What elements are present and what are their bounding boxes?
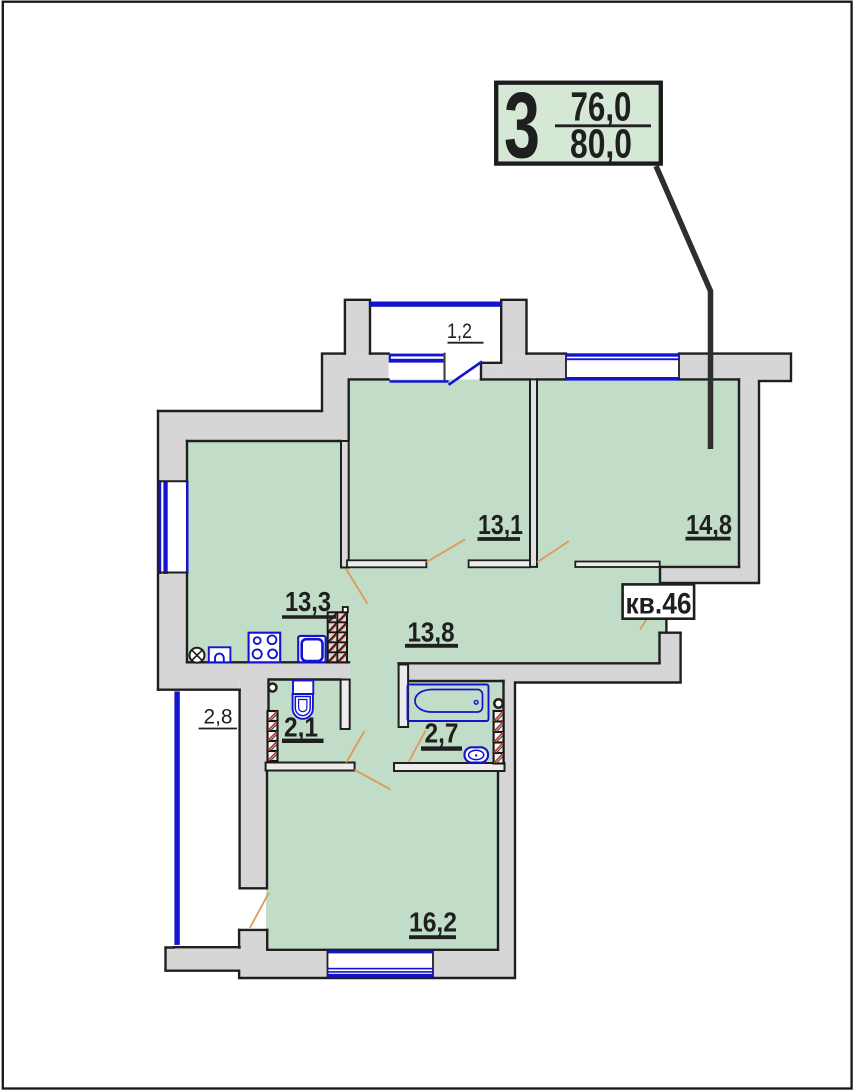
svg-text:16,2: 16,2 (409, 907, 457, 938)
svg-text:2,8: 2,8 (204, 705, 233, 729)
svg-text:13,1: 13,1 (478, 509, 523, 540)
svg-text:1,2: 1,2 (447, 319, 472, 343)
svg-text:13,3: 13,3 (285, 586, 331, 617)
svg-text:13,8: 13,8 (408, 617, 455, 648)
svg-text:3: 3 (504, 73, 540, 178)
svg-text:14,8: 14,8 (686, 509, 732, 540)
svg-text:2,1: 2,1 (284, 712, 318, 743)
svg-text:кв.46: кв.46 (626, 588, 692, 621)
svg-text:2,7: 2,7 (425, 718, 459, 749)
svg-text:80,0: 80,0 (570, 121, 632, 167)
